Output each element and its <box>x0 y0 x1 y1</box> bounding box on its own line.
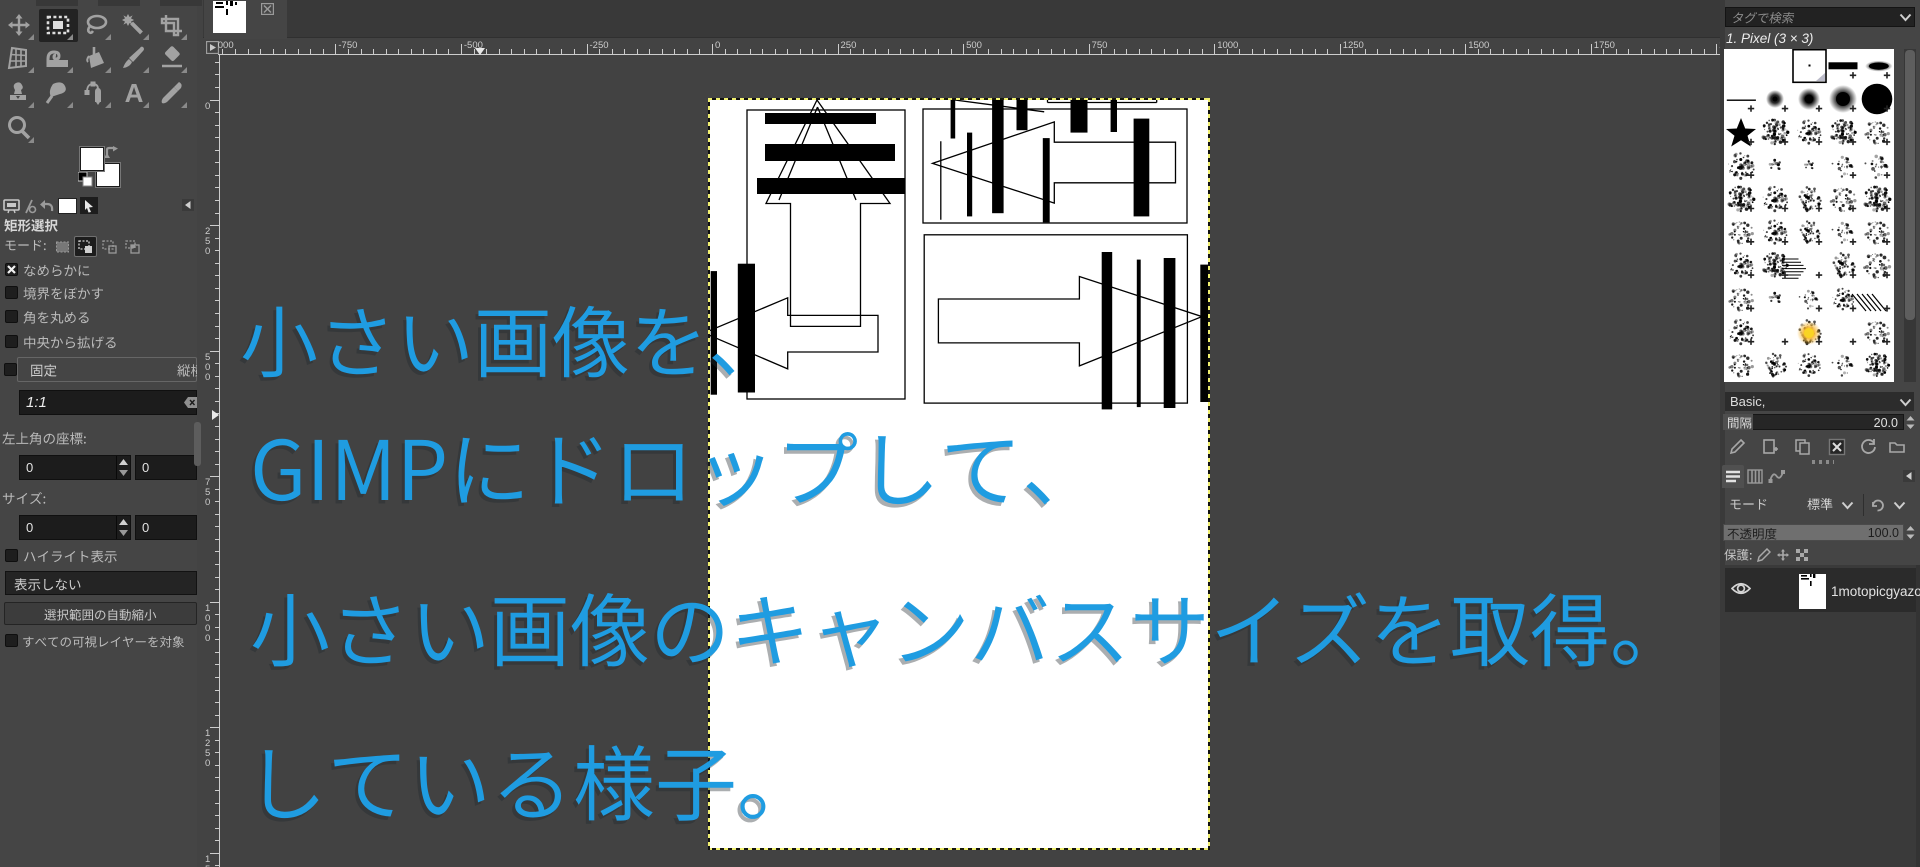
svg-text:A: A <box>125 78 144 108</box>
